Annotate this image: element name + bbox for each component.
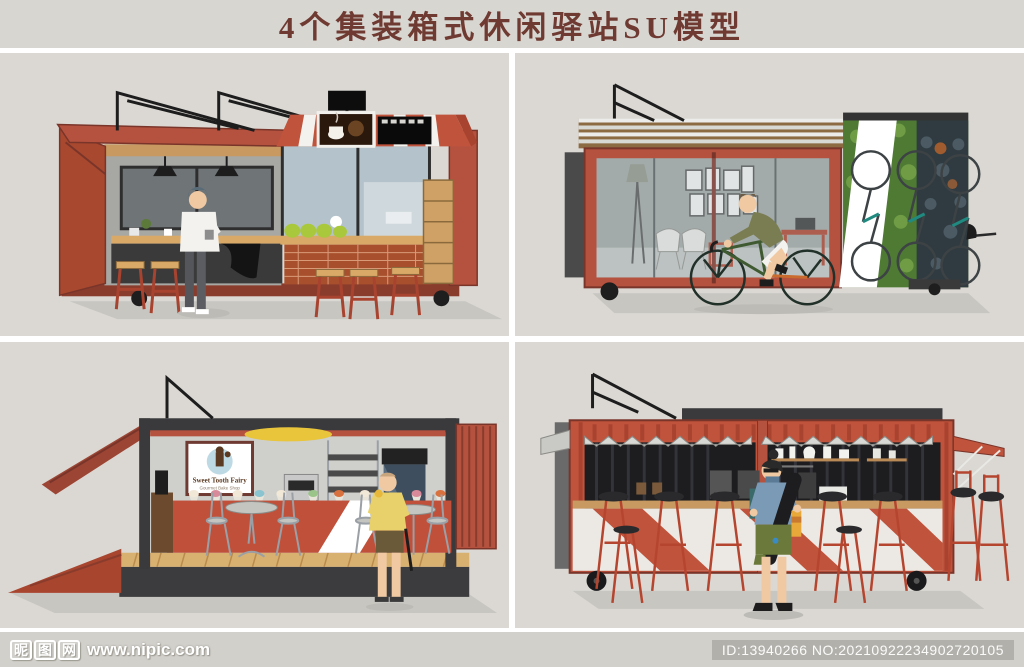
open-roof-flap: [42, 420, 149, 494]
bar-stool-seat: [151, 262, 179, 269]
image-id-badge: ID:13940266 NO:20210922234902720105: [712, 640, 1014, 660]
bar-stool-seat: [316, 269, 344, 276]
bakery-brand-text: Sweet Tooth Fairy: [193, 476, 248, 484]
title-band: 4个集装箱式休闲驿站SU模型: [0, 0, 1024, 48]
entry-ramp: [8, 549, 121, 593]
wood-deck: [119, 553, 469, 567]
tall-chair: [948, 470, 1008, 580]
page-title: 4个集装箱式休闲驿站SU模型: [279, 2, 745, 47]
footer-watermark-bar: 昵 图 网 www.nipic.com ID:13940266 NO:20210…: [0, 632, 1024, 667]
render-container-lounge: [515, 53, 1024, 336]
nipic-logo: 昵 图 网: [10, 640, 80, 660]
render-grid: Sweet Tooth Fairy Gourmet Bake Shop: [0, 48, 1024, 632]
flip-up-roof-window: [167, 378, 213, 418]
roof-tv-screen: [328, 91, 366, 111]
roof-railing: [614, 85, 684, 121]
roof-beam: [58, 124, 299, 146]
render-corrugated-coffee-bar: [515, 342, 1024, 628]
container-door: [456, 424, 496, 548]
bar-stool-seat: [350, 269, 378, 276]
wheel-icon: [433, 290, 449, 306]
open-side-flap: [60, 128, 106, 295]
menu-board: [378, 117, 432, 145]
watermark-url: www.nipic.com: [87, 640, 210, 660]
stock-image-page: { "header": { "title": "4个集装箱式休闲驿站SU模型" …: [0, 0, 1024, 667]
render-container-bakery: Sweet Tooth Fairy Gourmet Bake Shop: [0, 342, 509, 628]
bakery-tagline-text: Gourmet Bake Shop: [199, 485, 240, 490]
coffee-sign-board: [318, 113, 374, 147]
oval-ceiling-light: [245, 427, 332, 441]
panel-bottom-left-bakery: Sweet Tooth Fairy Gourmet Bake Shop: [0, 342, 509, 628]
striped-awning: [276, 115, 477, 147]
base-platform: [119, 567, 469, 597]
render-container-cafe: [0, 53, 509, 336]
panel-top-right-container-lounge: [515, 53, 1024, 336]
bar-stool-seat: [392, 267, 420, 274]
panel-bottom-right-coffee-bar: [515, 342, 1024, 628]
wood-pedestal: [151, 493, 173, 553]
green-living-wall: [839, 113, 968, 288]
slatted-roof: [579, 119, 845, 149]
side-panel: [565, 152, 585, 277]
interior-espresso-machine: [386, 212, 412, 224]
brick-counter-top: [280, 236, 431, 245]
coffee-grinder: [155, 470, 168, 494]
plant-icon: [141, 219, 151, 229]
wood-cabinet: [424, 180, 454, 283]
roof-railing: [593, 374, 677, 418]
bar-stool-seat: [116, 262, 144, 269]
bakery-sign: Sweet Tooth Fairy Gourmet Bake Shop: [187, 442, 253, 494]
wheel-icon: [600, 282, 618, 300]
site-watermark: 昵 图 网 www.nipic.com: [10, 640, 210, 660]
panel-top-left-container-cafe: [0, 53, 509, 336]
